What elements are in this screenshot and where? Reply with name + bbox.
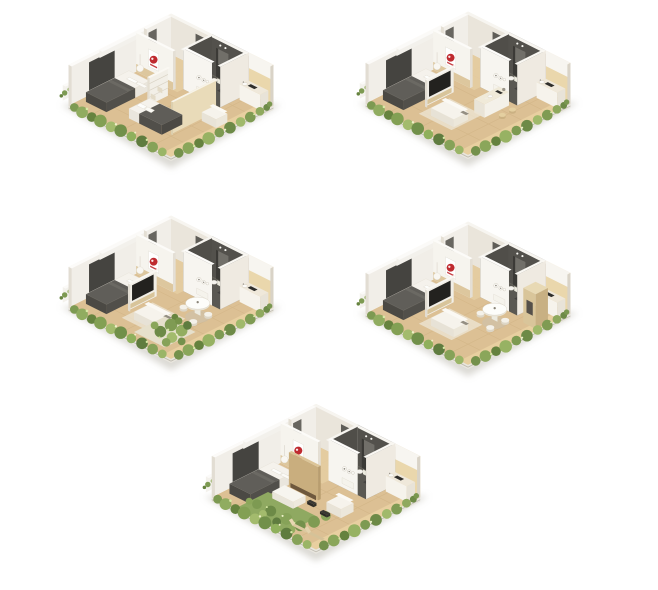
- feature-base: [357, 12, 579, 167]
- floorplan-unit-2: [352, 2, 584, 195]
- floorplan-unit-4: [352, 212, 584, 405]
- feature-base: [60, 216, 282, 371]
- floorplan-unit-3: [55, 206, 287, 399]
- feature-base: [60, 14, 282, 169]
- floorplan-board: [0, 0, 658, 590]
- floorplan-unit-1: [55, 4, 287, 197]
- floorplan-unit-5: [198, 394, 434, 590]
